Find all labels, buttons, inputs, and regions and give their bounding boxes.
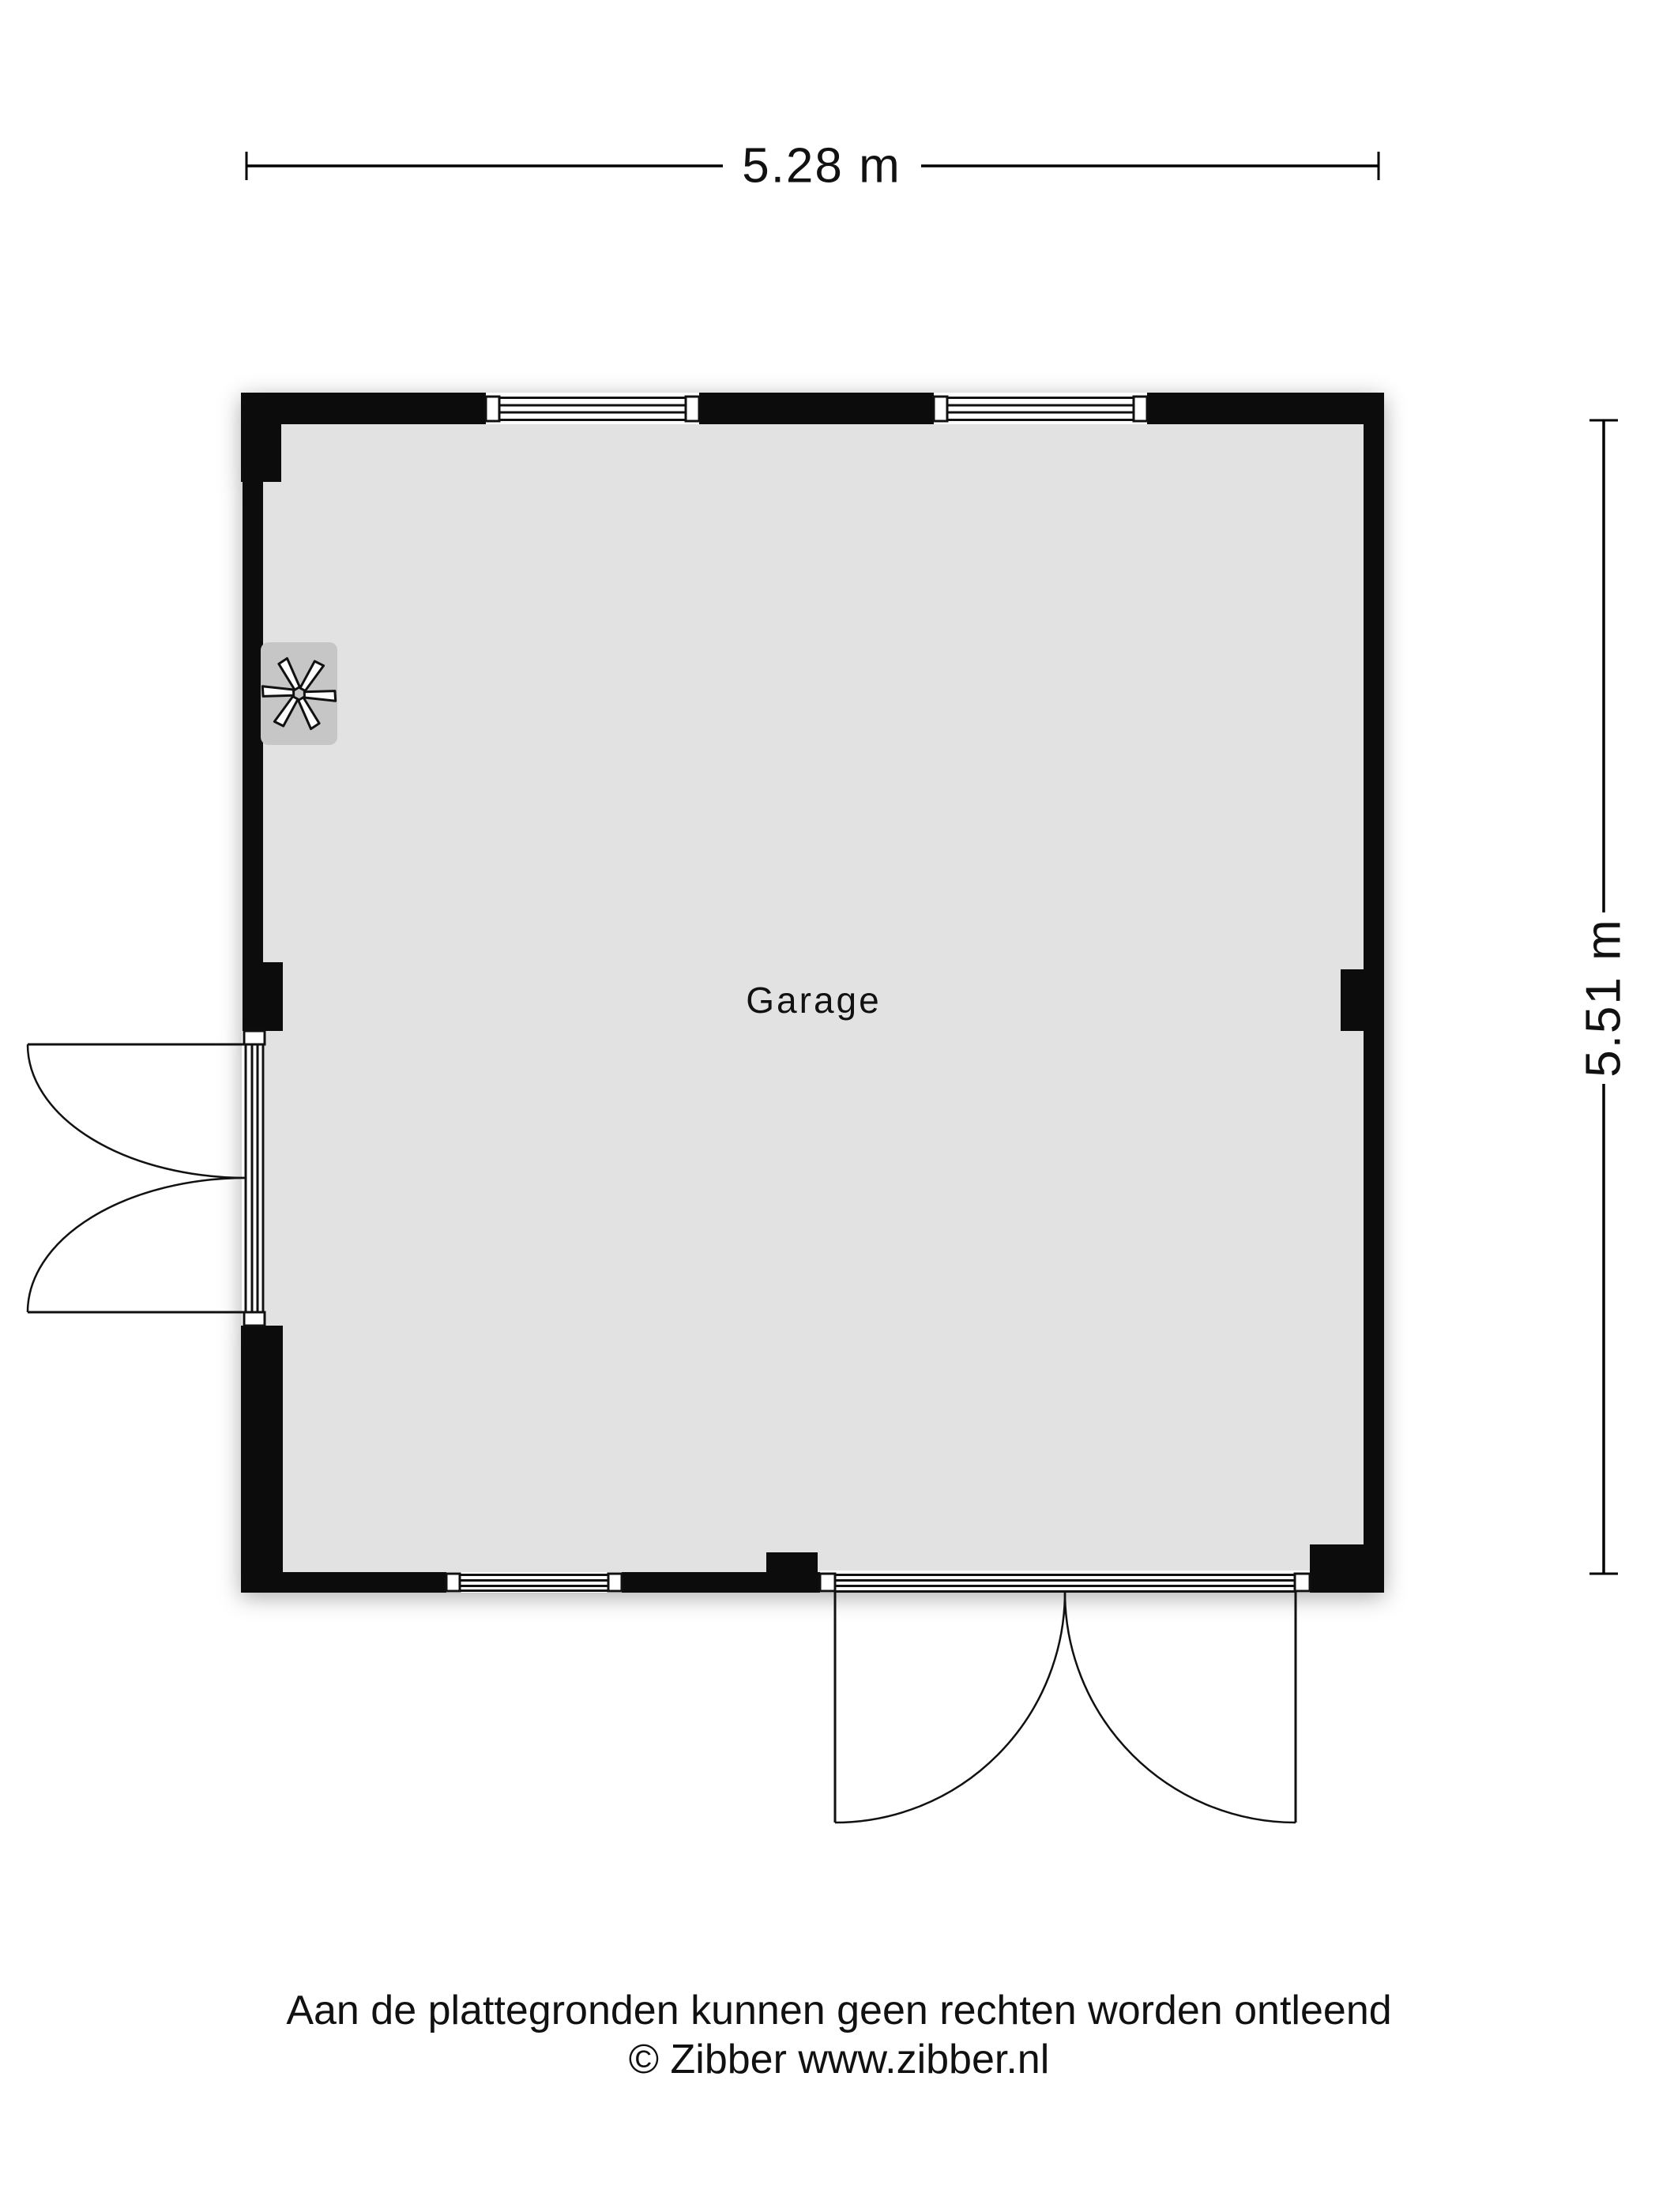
window-jamb (446, 1574, 460, 1591)
window-jamb (1134, 397, 1147, 421)
right-dimension-label: 5.51 m (1577, 918, 1631, 1078)
wall-bottom-segment-left (283, 1572, 446, 1593)
room-label: Garage (746, 980, 881, 1021)
wall-right-pillar (1341, 969, 1364, 1031)
door-swing-arc (28, 1178, 246, 1312)
door-left-swing (28, 1044, 246, 1312)
door-bottom-frame (820, 1571, 1310, 1593)
window-bottom (446, 1572, 622, 1593)
wall-top-segment-middle (699, 393, 934, 424)
ventilation-fan-icon (260, 642, 338, 745)
top-dimension: 5.28 m (246, 139, 1379, 194)
door-jamb (244, 1031, 265, 1044)
wall-right (1364, 393, 1384, 1593)
door-jamb (820, 1574, 835, 1591)
top-dimension-label: 5.28 m (742, 139, 901, 194)
window-top-right (934, 393, 1147, 424)
wall-left-lower-column (241, 1326, 283, 1593)
disclaimer-text: Aan de plattegronden kunnen geen rechten… (286, 1988, 1391, 2033)
window-jamb (934, 397, 947, 421)
window-jamb (486, 397, 499, 421)
wall-left-upper (243, 393, 263, 1031)
footer: Aan de plattegronden kunnen geen rechten… (286, 1988, 1391, 2082)
wall-left-pillar (243, 962, 283, 1031)
door-swing-arc (835, 1592, 1065, 1823)
door-jamb (244, 1312, 265, 1326)
door-bottom-swing (835, 1592, 1296, 1823)
floorplan-canvas: 5.28 m 5.51 m (0, 0, 1659, 2212)
copyright-text: © Zibber www.zibber.nl (629, 2037, 1050, 2082)
window-jamb (608, 1574, 622, 1591)
wall-bottom-pillar (766, 1552, 818, 1593)
door-swing-arc (28, 1044, 246, 1178)
wall-top-segment-right (1147, 393, 1384, 424)
right-dimension: 5.51 m (1577, 420, 1631, 1574)
window-top-left (486, 393, 699, 424)
window-jamb (686, 397, 699, 421)
door-jamb (1295, 1574, 1310, 1591)
door-swing-arc (1065, 1592, 1296, 1823)
building: Garage (241, 393, 1384, 1593)
